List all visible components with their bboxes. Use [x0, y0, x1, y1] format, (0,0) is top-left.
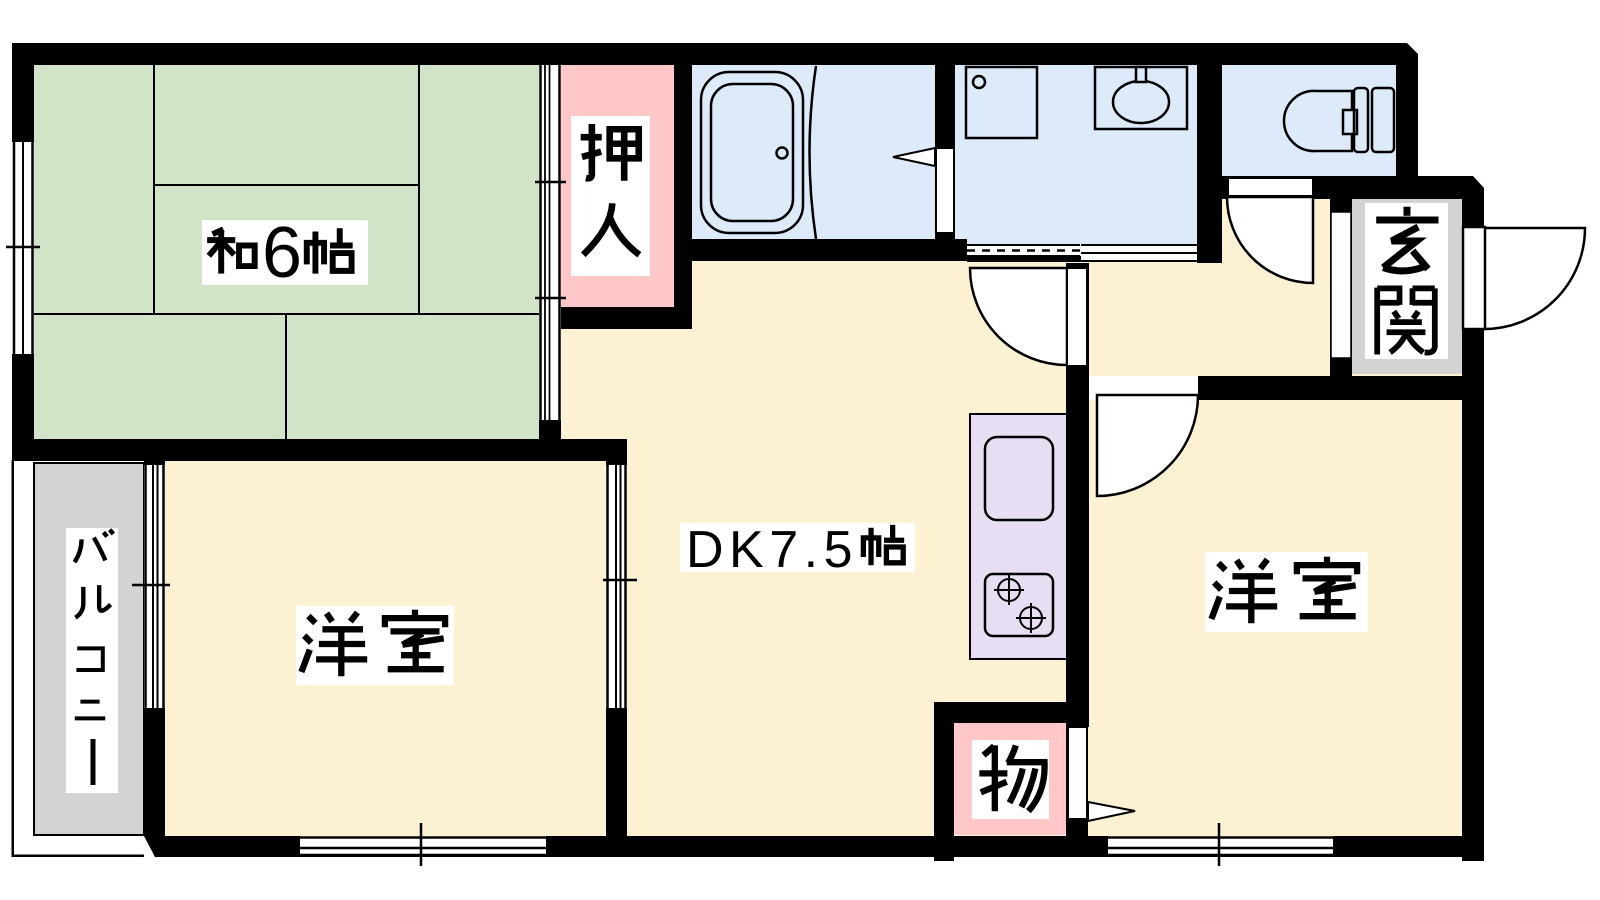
svg-text:DK7.5: DK7.5 [686, 521, 858, 579]
svg-text:6: 6 [262, 213, 302, 293]
